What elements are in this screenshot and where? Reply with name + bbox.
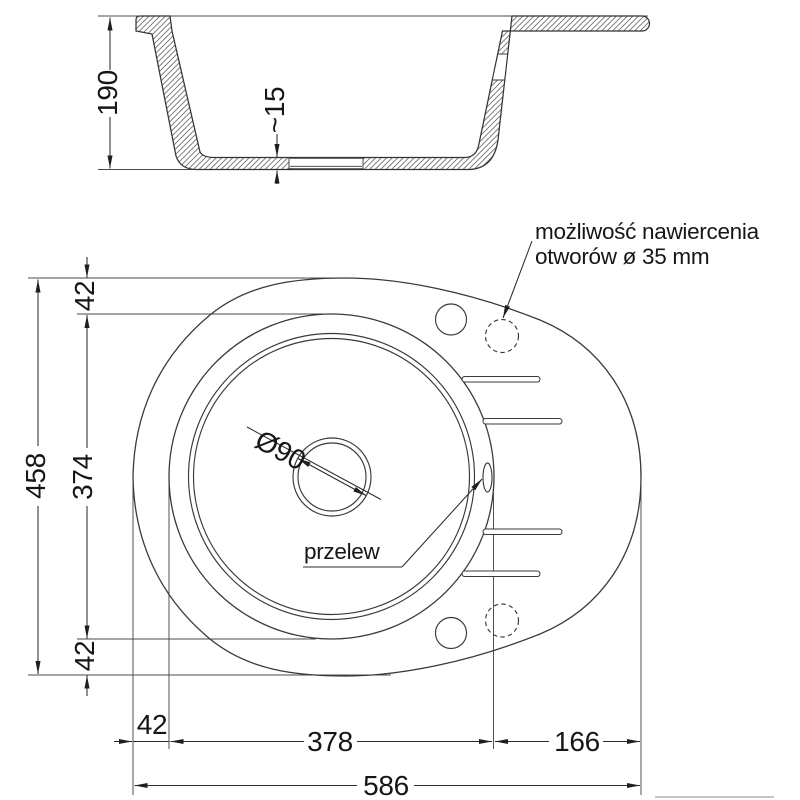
dim-bowl-height-value: 374 — [67, 454, 98, 500]
dimension-vertical-chain: 42 374 42 — [67, 257, 100, 696]
drill-note-line2: otworów ø 35 mm — [535, 244, 709, 269]
tap-hole-bottom — [436, 618, 467, 649]
drill-hole-dashed-bottom — [486, 604, 519, 637]
sink-outline — [133, 278, 641, 676]
overflow-ellipse — [483, 463, 492, 492]
drill-note-callout: możliwość nawiercenia otworów ø 35 mm — [503, 219, 760, 318]
drill-hole-dashed-top — [486, 320, 519, 353]
extension-lines — [28, 278, 641, 795]
dim-bottom-margin-value: 42 — [69, 641, 100, 672]
dim-depth-value: 190 — [92, 70, 123, 116]
sink-technical-drawing: 190 ~15 — [0, 0, 800, 800]
dim-bowl-width-value: 378 — [307, 726, 353, 757]
dim-total-height-value: 458 — [20, 453, 51, 499]
dim-top-margin-value: 42 — [69, 281, 100, 312]
dimension-total-width: 586 — [135, 770, 641, 800]
dim-bottom-thickness-value: ~15 — [259, 87, 290, 134]
overflow-label: przelew — [304, 539, 380, 564]
drainer-groove-1 — [462, 377, 540, 383]
drainer-groove-2 — [483, 419, 562, 425]
drill-note-line1: możliwość nawiercenia — [535, 219, 760, 244]
dimension-depth: 190 — [92, 18, 123, 169]
dimension-drain-diameter: Ø90 — [247, 424, 381, 499]
dimension-total-height: 458 — [20, 280, 51, 675]
technical-drawing-page: 190 ~15 — [0, 0, 800, 800]
dimension-horizontal-chain: 42 378 166 — [114, 709, 640, 757]
drainer-groove-4 — [462, 571, 540, 577]
top-view: 458 42 374 42 42 378 166 586 — [20, 219, 760, 800]
drain-recess — [289, 158, 363, 168]
dim-drainer-width-value: 166 — [554, 726, 600, 757]
section-view: 190 ~15 — [92, 16, 650, 184]
dim-total-width-value: 586 — [363, 770, 409, 800]
overflow-callout: przelew — [303, 479, 482, 567]
drainer-groove-3 — [483, 529, 562, 535]
drainer-grooves — [462, 377, 562, 577]
dim-left-margin-value: 42 — [137, 709, 168, 740]
section-profile — [136, 16, 650, 170]
tap-hole-top — [436, 304, 467, 335]
dim-drain-diameter-value: Ø90 — [250, 424, 311, 476]
